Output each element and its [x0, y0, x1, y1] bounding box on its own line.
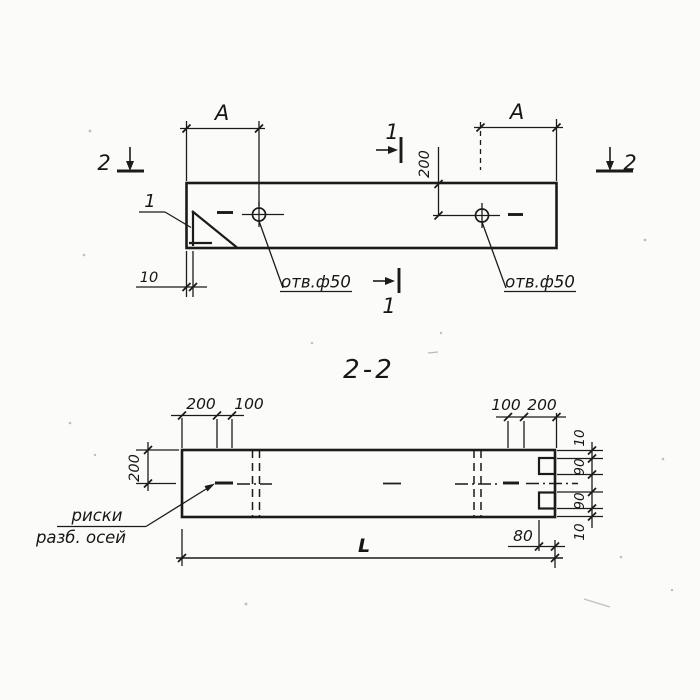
dims-top-right: 100 200 — [491, 396, 566, 448]
dim-200-section-label: 200 — [127, 454, 143, 482]
dim-top-left-200: 200 — [186, 395, 216, 413]
section-arrow-down-icon — [126, 161, 134, 171]
notch-top — [539, 458, 555, 474]
dim-200-plan-label: 200 — [417, 150, 433, 178]
dim-length-label: L — [358, 535, 370, 557]
section-arrow-right-icon — [385, 277, 395, 285]
section-mark-1-top-label: 1 — [385, 120, 398, 144]
hole-label-left: отв.ф50 — [281, 273, 351, 292]
dim-80-label: 80 — [513, 527, 533, 545]
dim-10-plan: 10 — [136, 251, 207, 297]
dim-200-section: 200 — [127, 442, 179, 491]
hidden-edges — [253, 450, 482, 517]
dim-top-right-100: 100 — [491, 396, 521, 414]
section-mark-1-bottom: 1 — [373, 268, 399, 318]
axis-note-line1: риски — [71, 506, 123, 525]
centre-axis — [215, 483, 578, 484]
section-view: 2-2 200 — [35, 355, 603, 568]
dim-length-L: L — [176, 529, 563, 568]
technical-drawing: А А 200 2 2 — [0, 0, 700, 700]
section-mark-1-bottom-label: 1 — [382, 294, 395, 318]
detail-callout-1: 1 — [139, 191, 191, 228]
section-title: 2-2 — [343, 355, 395, 385]
dim-right-90-top: 90 — [572, 458, 588, 475]
dims-right-chain: 10 90 90 10 — [557, 429, 603, 540]
notch-bottom — [539, 493, 555, 509]
dim-right-10-top: 10 — [572, 429, 588, 446]
dim-right-90-bottom: 90 — [572, 492, 588, 509]
plan-panel-outline — [187, 183, 557, 248]
section-arrow-right-icon — [388, 146, 398, 154]
hole-left — [217, 202, 284, 227]
hole-label-right: отв.ф50 — [505, 273, 575, 292]
detail-callout-label: 1 — [144, 191, 155, 212]
dim-a-right-label: А — [508, 100, 524, 124]
section-mark-2-right: 2 — [596, 147, 637, 175]
leader-arrow-icon — [205, 484, 216, 492]
axis-note: риски разб. осей — [35, 484, 215, 548]
axis-note-line2: разб. осей — [35, 528, 126, 547]
plan-view: А А 200 2 2 — [97, 100, 636, 318]
dim-a-left: А — [180, 101, 265, 206]
dim-80: 80 — [508, 520, 565, 551]
dim-right-10-bottom: 10 — [572, 523, 588, 540]
dim-top-left-100: 100 — [234, 395, 264, 413]
drawing-sheet: А А 200 2 2 — [0, 0, 700, 700]
dims-top-left: 200 100 — [171, 395, 264, 448]
section-mark-2-left: 2 — [97, 147, 144, 175]
dim-top-right-200: 200 — [527, 396, 557, 414]
section-mark-2-left-label: 2 — [97, 151, 110, 175]
dim-a-right: А — [474, 100, 563, 181]
hole-leader-left: отв.ф50 — [259, 221, 352, 292]
dim-10-label: 10 — [140, 270, 158, 286]
section-mark-1-top: 1 — [376, 120, 401, 163]
dim-a-left-label: А — [213, 101, 229, 125]
corner-detail-triangle — [189, 211, 237, 248]
section-arrow-down-icon — [606, 161, 614, 171]
hole-right — [433, 203, 523, 228]
hole-leader-right: отв.ф50 — [482, 222, 576, 292]
